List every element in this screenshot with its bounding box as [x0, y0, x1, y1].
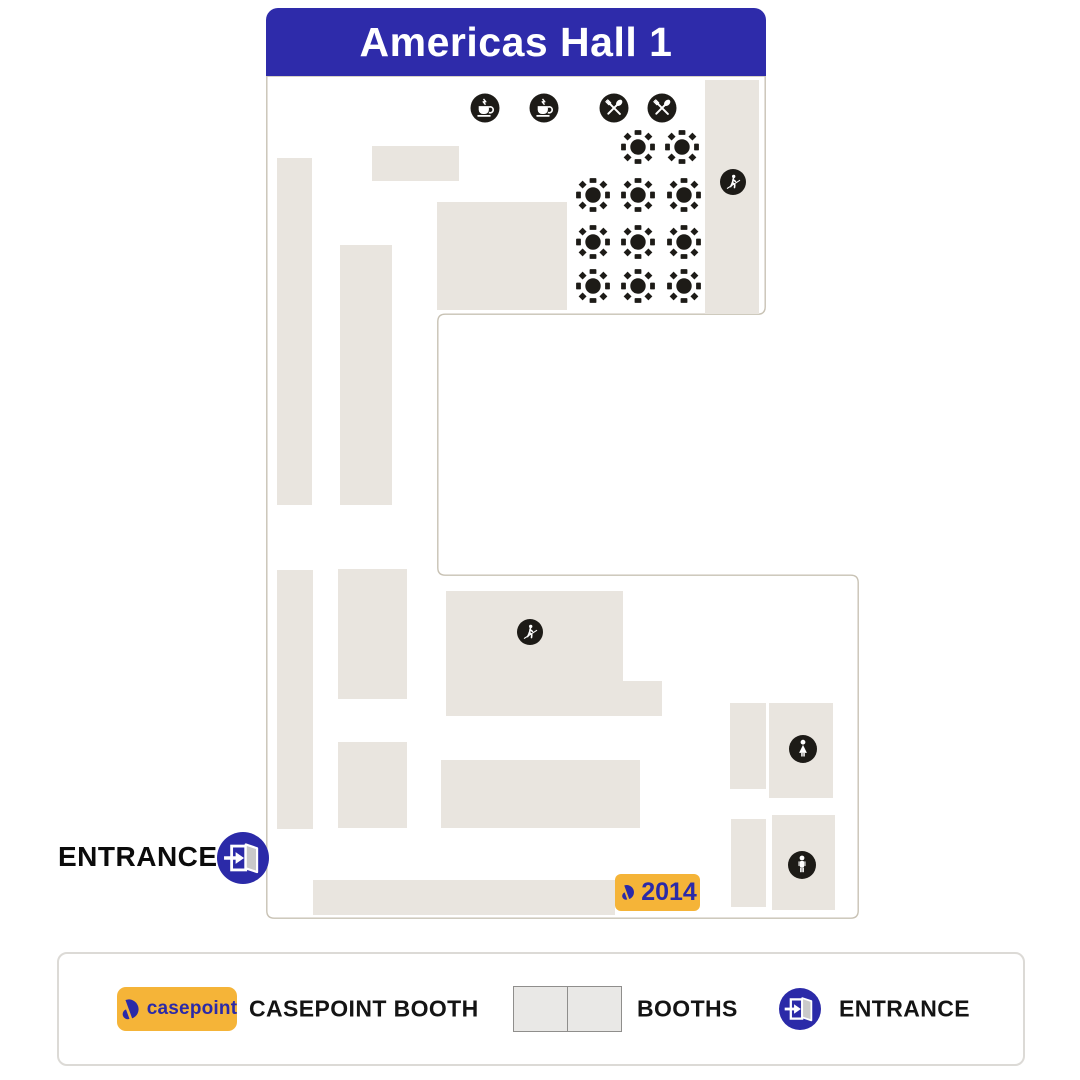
booth-block [313, 880, 615, 915]
legend-booths-label: BOOTHS [637, 996, 738, 1023]
round-table-icon [575, 224, 612, 261]
coffee-icon [530, 94, 559, 123]
booth-block [441, 760, 640, 828]
casepoint-logo-badge: casepoint [117, 987, 237, 1031]
booth-cell [567, 986, 622, 1032]
entrance-legend-icon [779, 988, 821, 1030]
hall-title: Americas Hall 1 [360, 19, 673, 66]
booth-block [277, 158, 312, 505]
utensils-icon [600, 94, 629, 123]
booth-block [277, 570, 313, 829]
booth-block [731, 819, 766, 907]
hall-outline [0, 0, 1080, 1080]
casepoint-booth-number: 2014 [641, 878, 697, 907]
round-table-icon [575, 177, 612, 214]
booth-block [437, 202, 567, 310]
round-table-icon [620, 268, 657, 305]
round-table-icon [666, 224, 703, 261]
entrance-label: ENTRANCE [58, 841, 218, 873]
restroom-men-icon [788, 851, 816, 879]
legend: casepoint CASEPOINT BOOTH BOOTHS ENTRANC… [57, 952, 1025, 1066]
round-table-icon [620, 177, 657, 214]
round-table-icon [666, 177, 703, 214]
casepoint-logo-icon [618, 884, 635, 901]
booth-block [338, 569, 407, 699]
legend-casepoint-booth-label: CASEPOINT BOOTH [249, 996, 479, 1023]
round-table-icon [620, 129, 657, 166]
escalator-icon [720, 169, 746, 195]
floor-plan: Americas Hall 1 ENTRANCE 2014 casepoint … [0, 0, 1080, 1080]
booth-block [340, 245, 392, 505]
escalator-icon [517, 619, 543, 645]
hall-title-banner: Americas Hall 1 [266, 8, 766, 76]
casepoint-logo-text: casepoint [147, 998, 238, 1020]
booth-cell [513, 986, 568, 1032]
booth-block [730, 703, 766, 789]
round-table-icon [664, 129, 701, 166]
casepoint-logo-icon [117, 998, 140, 1021]
booth-block [705, 80, 759, 314]
booths-symbol [513, 986, 622, 1032]
casepoint-booth-badge: 2014 [615, 874, 700, 911]
round-table-icon [575, 268, 612, 305]
booth-block [338, 742, 407, 828]
booth-block [446, 681, 532, 716]
round-table-icon [666, 268, 703, 305]
legend-entrance-label: ENTRANCE [839, 996, 970, 1023]
booth-block [532, 681, 662, 716]
booth-block [372, 146, 459, 181]
entrance-door-icon [217, 832, 269, 884]
coffee-icon [471, 94, 500, 123]
restroom-women-icon [789, 735, 817, 763]
round-table-icon [620, 224, 657, 261]
utensils-icon [648, 94, 677, 123]
